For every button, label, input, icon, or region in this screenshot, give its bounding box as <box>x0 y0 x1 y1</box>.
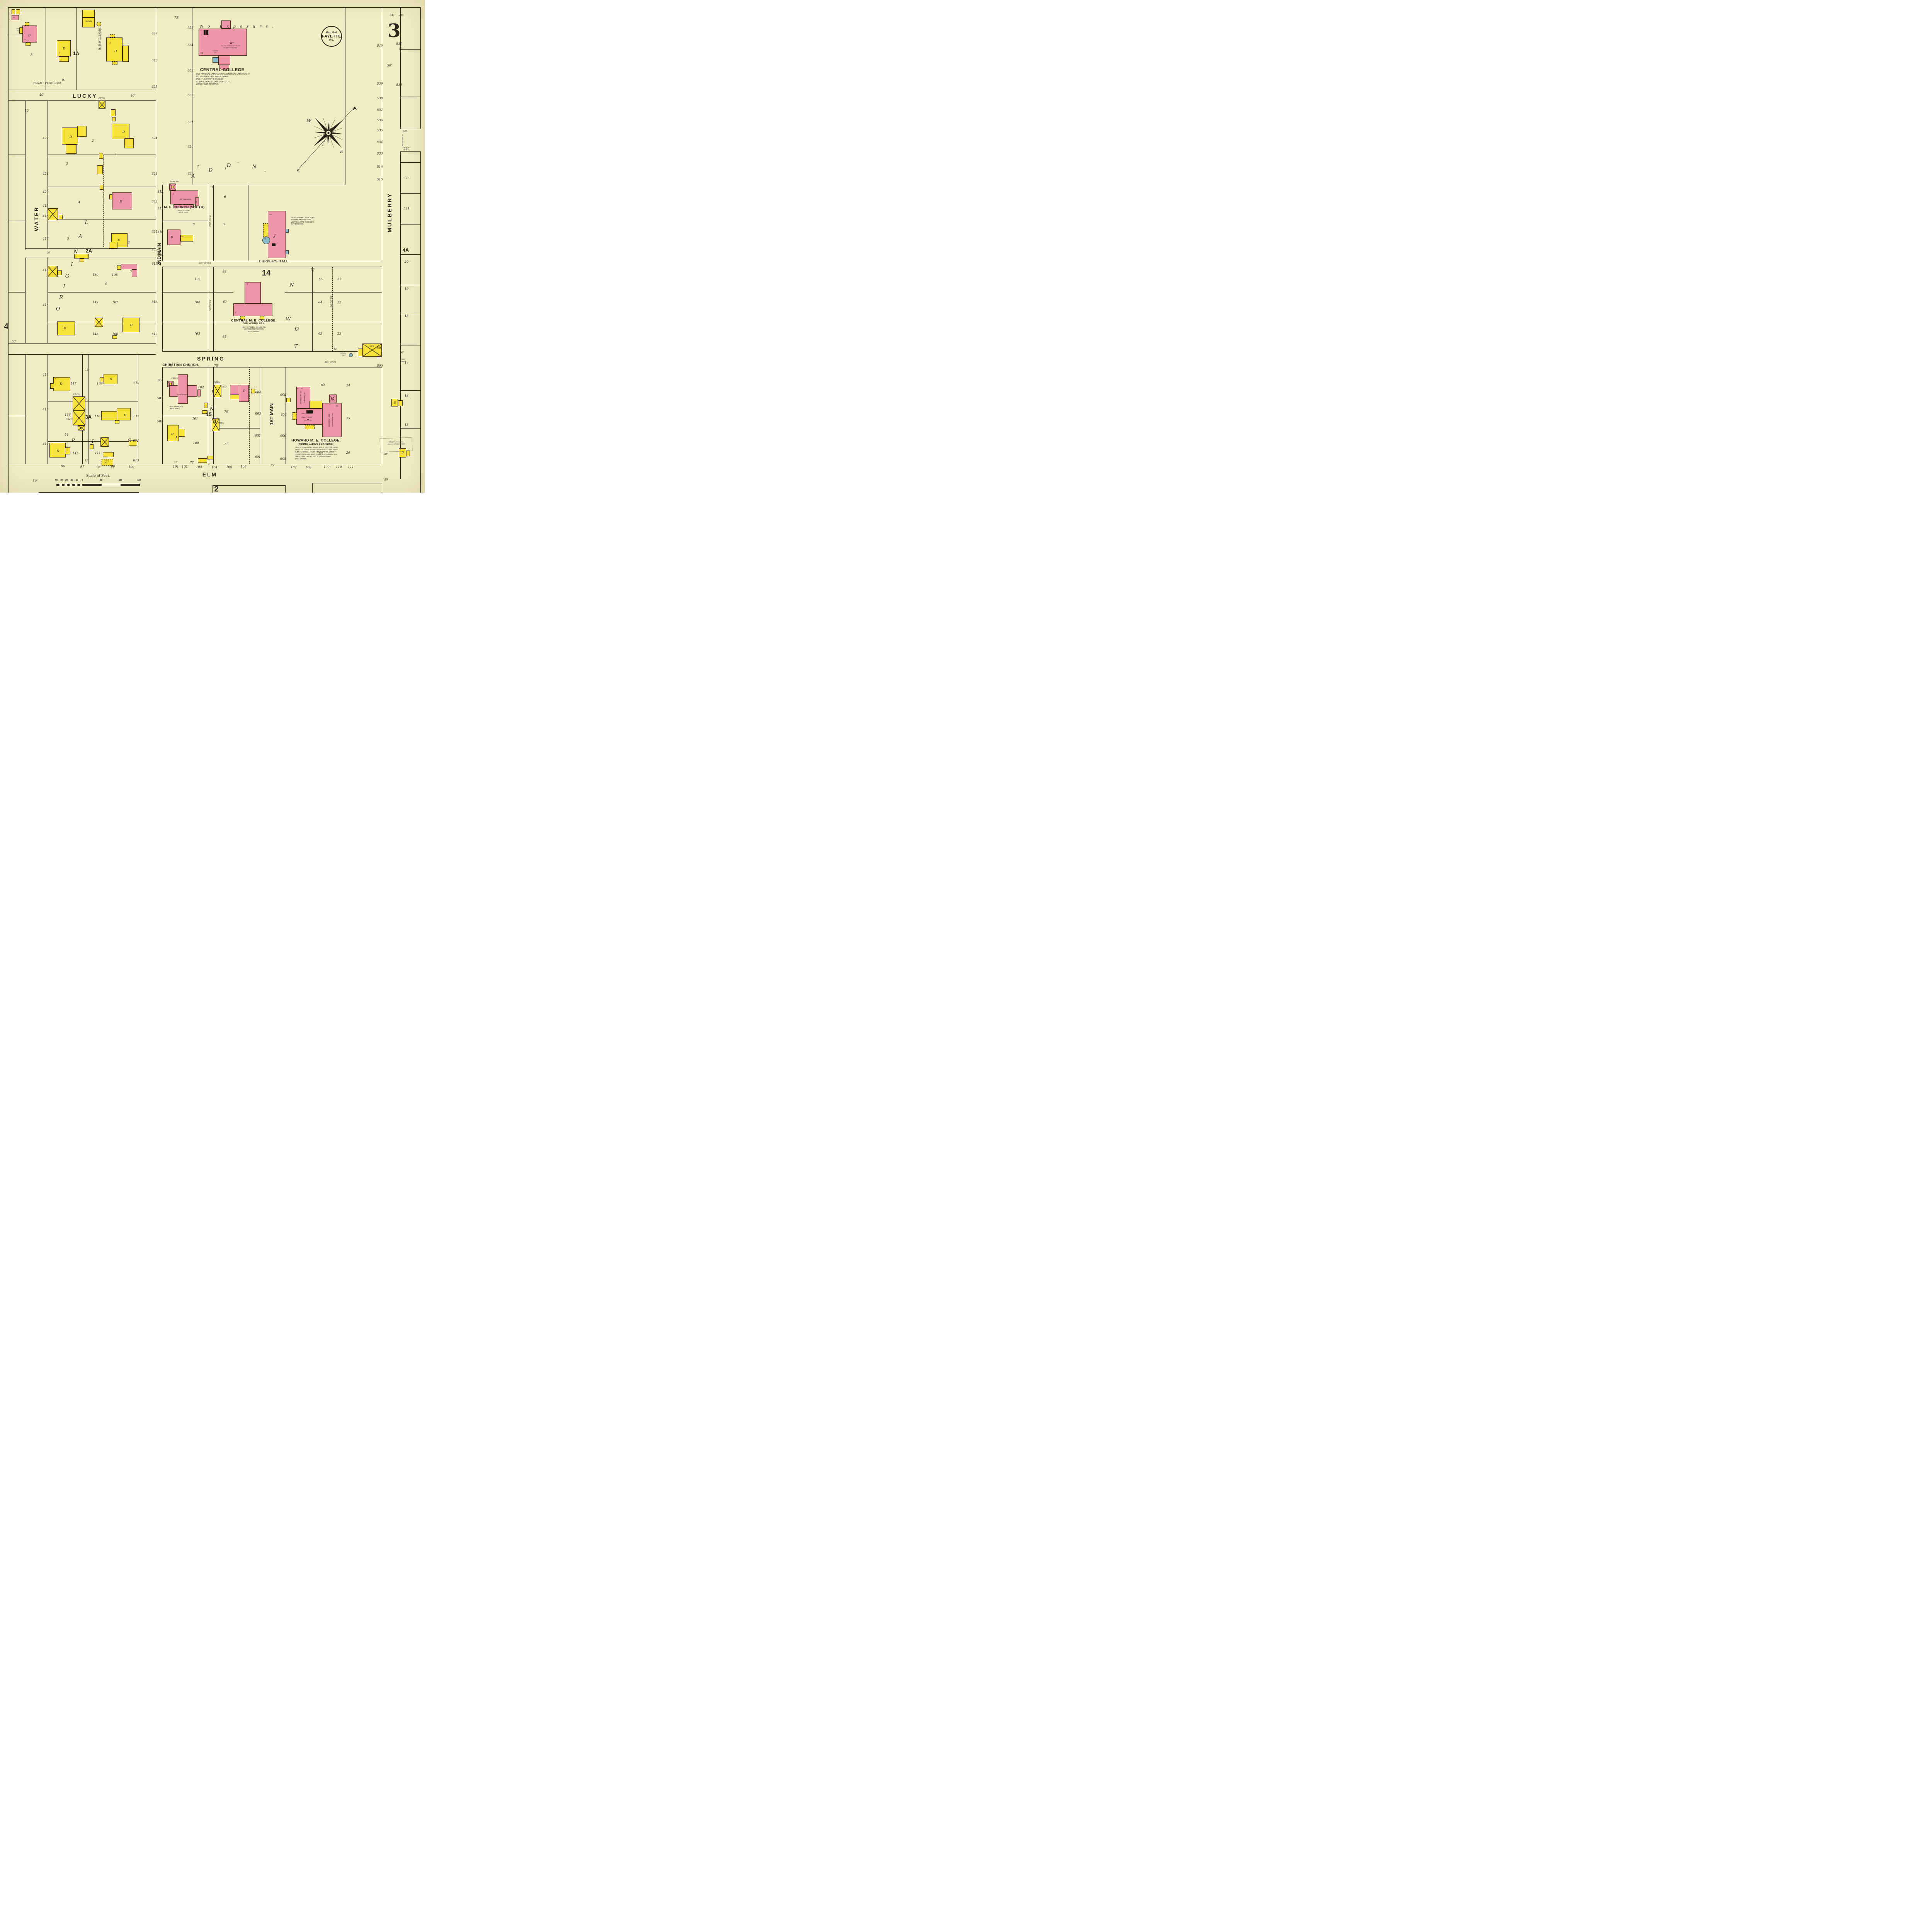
map-label: 50' <box>25 109 29 112</box>
scale-bar-left <box>56 484 83 486</box>
map-label: 422½ <box>98 98 105 100</box>
map-line <box>285 293 382 293</box>
building <box>286 250 289 254</box>
map-line <box>25 354 26 464</box>
map-label: 3B <box>297 388 299 389</box>
building <box>26 43 31 46</box>
map-label: N <box>73 250 78 255</box>
map-label: 534 <box>377 141 383 144</box>
landmark-subtitle: FOR YOUNG MEN. <box>243 323 265 325</box>
map-label: 9 <box>105 282 107 286</box>
building <box>122 46 129 62</box>
building <box>305 425 315 429</box>
building <box>213 57 218 63</box>
building <box>199 29 247 56</box>
map-label: 510 <box>157 231 163 234</box>
map-label: 66 <box>223 270 226 274</box>
library-of-congress-stamp: Map Division Library of Congress <box>379 437 412 452</box>
building <box>207 456 214 459</box>
building <box>406 451 410 456</box>
building <box>16 9 20 14</box>
map-line <box>285 485 286 493</box>
map-label: 6 <box>224 196 226 199</box>
map-line <box>400 345 420 345</box>
scale-tick-label: 150 <box>137 479 141 481</box>
building-crossed <box>48 208 58 220</box>
building-crossed <box>214 385 221 397</box>
building <box>99 153 103 159</box>
map-label: 533 <box>377 152 383 155</box>
map-label: 75' <box>174 16 179 19</box>
map-label: 422 <box>43 137 48 140</box>
scale-title: Scale of Feet. <box>86 474 110 478</box>
map-label: T <box>294 344 298 349</box>
map-label: 107 <box>112 301 118 304</box>
sanborn-map-page: 54153275'6356346336326316306296276266251… <box>0 0 425 503</box>
map-label: 7 <box>223 223 225 226</box>
map-label: 2B <box>24 39 26 41</box>
map-label: 110 <box>336 466 342 469</box>
landmark-note: LIGHT: ELEC. <box>169 408 180 410</box>
map-line <box>332 267 333 351</box>
map-label: 16 <box>405 395 408 398</box>
map-line <box>162 416 208 416</box>
map-line <box>312 483 382 483</box>
building <box>82 10 95 17</box>
map-label: 15 <box>405 423 408 427</box>
map-label: 531 <box>396 43 402 46</box>
map-label: 416 <box>43 269 48 272</box>
map-label: 525 <box>403 177 409 180</box>
map-label: 622 <box>151 200 157 203</box>
map-label: 614 <box>133 439 139 442</box>
map-line <box>400 285 420 285</box>
pipe-circle-icon <box>307 419 309 420</box>
map-label: 623 <box>151 172 157 175</box>
map-label: 603 <box>255 412 261 415</box>
map-label: 44' <box>301 388 303 389</box>
building <box>12 9 15 14</box>
map-label: 100' <box>214 53 216 54</box>
building <box>59 215 63 219</box>
compass-south-label: S <box>297 168 300 173</box>
well-icon <box>262 236 270 244</box>
building-crossed <box>78 425 85 430</box>
map-line <box>48 401 138 401</box>
building <box>50 383 54 389</box>
map-label: 601 <box>255 456 260 459</box>
map-line <box>8 354 156 355</box>
map-label: 145 <box>72 452 78 455</box>
map-label: 12' <box>174 461 178 464</box>
map-label: A <box>191 174 195 179</box>
map-label: 104 <box>211 466 217 469</box>
building-crossed <box>73 411 85 425</box>
map-label: MILL. <box>342 355 346 357</box>
map-label: V.P. <box>274 235 276 236</box>
map-label: Laundry <box>85 21 92 23</box>
map-label: 75' <box>311 268 315 271</box>
building <box>310 401 322 408</box>
map-line <box>162 267 163 351</box>
map-label: 412 <box>43 443 48 446</box>
map-label: 50' <box>33 480 37 483</box>
map-label: R <box>59 295 63 300</box>
map-line <box>39 492 139 493</box>
map-label: D <box>63 47 65 50</box>
landmark-note: 3D. HALL. HEAT: STEAM. LIGHT: ELEC. <box>196 81 231 83</box>
map-label: 635 <box>187 26 193 29</box>
map-label: 69 <box>223 386 226 389</box>
map-label: 617 <box>151 333 157 336</box>
building <box>115 420 119 423</box>
map-label: 40' <box>39 94 44 97</box>
map-label: 500 <box>377 364 383 367</box>
map-label: D <box>130 324 133 327</box>
map-label: 64 <box>318 301 322 304</box>
map-label: 101 <box>173 465 179 468</box>
map-label: 4 <box>264 238 266 240</box>
map-label: 516 <box>377 165 383 168</box>
map-label: D <box>28 34 31 37</box>
title-stamp: Mar. 1902 FAYETTE MO. <box>321 26 342 47</box>
map-label: 512 <box>157 190 163 194</box>
map-label: SPRING <box>197 356 225 361</box>
building <box>272 243 276 246</box>
map-label: 18 <box>405 315 408 318</box>
map-label: 102 <box>198 386 204 389</box>
building <box>59 56 69 62</box>
building <box>239 385 249 402</box>
building <box>25 22 29 26</box>
map-line <box>400 254 420 255</box>
map-label: 75' <box>270 464 275 467</box>
map-label: 12' <box>333 348 337 350</box>
map-label: 18' TO EAVES. <box>177 394 189 396</box>
scale-bar-right <box>82 484 140 486</box>
map-label: 2 <box>92 139 94 143</box>
map-label: 418 <box>43 215 48 218</box>
building <box>121 264 137 269</box>
map-label: 50' <box>387 64 392 67</box>
building <box>206 30 208 35</box>
map-label: Shed <box>369 346 374 348</box>
map-label: O <box>56 307 60 312</box>
map-label: 540 <box>377 44 383 48</box>
map-label: 62 <box>321 384 325 387</box>
map-label: 535 <box>377 129 383 132</box>
building <box>65 447 70 454</box>
map-label: (NOT <box>401 359 406 361</box>
map-label: 75' <box>214 364 219 367</box>
building <box>112 124 129 139</box>
map-line <box>25 100 26 250</box>
map-label: A. <box>31 54 33 56</box>
map-line <box>248 185 248 261</box>
building <box>178 374 188 404</box>
map-label: 504 <box>157 379 163 382</box>
landmark-name: CUPPLE'S HALL. <box>259 259 289 263</box>
map-label: 3A <box>85 415 92 420</box>
map-label: D <box>70 136 72 139</box>
map-label: 511 <box>157 207 163 210</box>
map-label: 68 <box>223 335 226 338</box>
map-line <box>400 428 420 429</box>
building <box>111 109 116 116</box>
map-label: 541 <box>389 14 395 17</box>
building <box>358 349 363 356</box>
building <box>101 411 117 420</box>
landmark-note: WELL WATER. <box>248 331 260 333</box>
map-label: V.P. <box>232 42 235 43</box>
map-line <box>8 7 420 8</box>
map-label: 530 <box>396 83 402 87</box>
map-label: WALL TO ROOF. <box>302 417 313 418</box>
map-label: Gymnasium 4TH <box>332 413 334 427</box>
map-label: 515 <box>377 178 383 181</box>
building-crossed <box>73 396 85 411</box>
landmark-name: CENTRAL M. E. COLLEGE. <box>231 318 276 322</box>
compass-west-label: W <box>307 118 312 123</box>
map-line <box>400 129 420 129</box>
map-line <box>400 390 420 391</box>
map-label: N <box>252 165 256 170</box>
map-label: D <box>243 390 245 393</box>
building <box>263 223 268 237</box>
building <box>268 211 286 258</box>
map-label: 101 <box>192 417 198 420</box>
building <box>197 389 201 396</box>
map-label: ELM <box>202 472 218 477</box>
map-line <box>213 267 214 351</box>
stamp-state: MO. <box>329 39 334 41</box>
map-label: 608 <box>280 393 286 396</box>
map-label: 415 <box>43 304 48 307</box>
map-label: 413½ <box>73 393 80 396</box>
landmark-name: M. E. CHURCH (SOUTH) <box>164 205 205 209</box>
building <box>66 145 77 154</box>
building <box>204 403 207 408</box>
building <box>97 165 103 174</box>
map-line <box>400 162 420 163</box>
map-label: G <box>128 438 131 443</box>
map-label: 2 <box>214 485 218 493</box>
map-label: 99½ <box>103 457 107 459</box>
map-label: A <box>78 234 82 239</box>
map-line <box>213 185 214 261</box>
building <box>198 458 207 463</box>
map-label: 12' <box>85 460 88 462</box>
map-label: R. P. WILLIAMS. <box>99 27 102 50</box>
map-label: 616 <box>133 382 139 385</box>
map-label: 109 <box>323 466 329 469</box>
map-line <box>420 151 421 493</box>
landmark-name: HOWARD M. E. COLLEGE. <box>291 439 341 443</box>
map-label: D <box>110 378 112 381</box>
map-label: 19 <box>405 287 408 291</box>
building <box>77 126 87 137</box>
map-label: 3 <box>235 312 236 314</box>
building <box>80 259 84 262</box>
map-label: 1 <box>224 168 226 171</box>
map-line <box>213 429 260 429</box>
map-label: 71 <box>224 443 228 446</box>
map-label: 105 <box>226 466 232 469</box>
map-label: (NOT OPEN) <box>210 215 212 226</box>
map-label: 150 <box>92 274 98 277</box>
scale-tick-label: 0 <box>82 479 83 481</box>
map-line <box>48 219 156 219</box>
map-label: (NOT OPEN) <box>325 362 336 364</box>
map-line <box>25 257 156 257</box>
map-label: 615 <box>133 415 139 418</box>
map-label: I <box>92 439 94 444</box>
map-label: 106 <box>112 333 118 336</box>
map-label: REYNOLDS ST. <box>402 134 404 146</box>
map-label: W <box>286 317 291 322</box>
map-label: 8 <box>192 223 194 226</box>
map-label: G <box>65 274 69 279</box>
map-label: L <box>85 220 88 225</box>
map-label: 96 <box>61 465 65 468</box>
map-label: 70 <box>224 410 228 413</box>
map-label: ISAAC PEARSON. <box>34 82 62 85</box>
landmark-note: WELL WATER. <box>295 458 307 460</box>
map-label: D <box>171 433 173 436</box>
map-label: 625 <box>151 85 157 88</box>
building <box>398 400 403 406</box>
landmark-name: CHRISTIAN CHURCH. <box>163 363 199 367</box>
map-label: D <box>124 414 126 417</box>
map-label: Recitation Rm. 1st. <box>300 390 302 404</box>
map-label: D <box>57 450 59 453</box>
map-label: 2 <box>197 165 199 168</box>
map-label: 607 <box>281 413 286 417</box>
building <box>124 138 134 148</box>
map-label: 26 <box>346 451 350 454</box>
stamp-date: Mar. 1902 <box>326 31 337 34</box>
map-label: 108 <box>305 466 311 469</box>
map-label: 536 <box>377 119 383 122</box>
landmark-note: 1ST. RECITATION ROOMS & CHAPEL. <box>196 76 230 78</box>
map-label: I <box>175 435 177 440</box>
map-label: R <box>71 438 75 443</box>
map-label: 1ST MAIN <box>269 403 274 425</box>
map-canvas: 54153275'6356346336326316306296276266251… <box>0 0 425 493</box>
landmark-note: 2ND. " " , LIBRARY & MUSEUM. <box>196 78 224 80</box>
map-label: 4 <box>4 323 8 330</box>
map-label: 106 <box>240 465 246 468</box>
map-label: 110 <box>94 415 100 418</box>
map-label: 50' <box>384 453 388 456</box>
map-label: 2 <box>110 43 111 44</box>
map-label: 50' <box>12 340 16 343</box>
building <box>286 229 289 233</box>
map-line <box>400 151 420 152</box>
map-label: 102 <box>182 465 187 468</box>
building-crossed <box>48 266 58 277</box>
map-line <box>77 7 77 90</box>
building <box>218 56 230 65</box>
map-label: 2 <box>59 53 60 54</box>
map-line <box>8 221 25 221</box>
map-label: 5 <box>67 237 69 240</box>
map-label: 1A <box>73 51 80 56</box>
map-line <box>213 485 213 493</box>
map-label: 502 <box>157 420 163 423</box>
map-label: 526 <box>403 147 409 150</box>
map-label: 23 <box>337 332 341 335</box>
map-label: 1ST. <box>17 31 20 32</box>
map-line <box>162 293 233 293</box>
map-label: V.P. <box>310 420 312 422</box>
landmark-note: ELEC. CHEMICAL HAND FIRE EXT'G'RS & ONE … <box>295 451 335 453</box>
map-label: (OLD) <box>105 460 109 462</box>
map-label: 103 <box>194 332 200 335</box>
map-label: D <box>118 239 120 242</box>
map-label: 65 <box>319 278 323 281</box>
building <box>167 230 180 245</box>
landmark-note: HAND GRENADES SCATTERED THROUGH BL'D'G. <box>295 454 337 456</box>
map-label: 50' <box>399 48 403 51</box>
landmark-note: BAS. PHYSICAL LABORATORY & CHEMICAL LABO… <box>196 73 250 75</box>
scale-tick-label: 50 <box>100 479 102 481</box>
map-label: 104 <box>194 301 200 304</box>
map-label: 50' <box>384 479 389 481</box>
building-crossed <box>100 437 109 447</box>
map-label: MULBERRY <box>387 193 392 233</box>
map-label: (NOT OPEN) <box>210 299 212 311</box>
map-label: 12' <box>208 464 211 466</box>
scale-tick-label: 30 <box>65 479 68 481</box>
building <box>90 444 94 449</box>
map-line <box>48 293 156 293</box>
map-label: D <box>122 131 125 134</box>
map-line <box>162 185 163 261</box>
map-label: 532 <box>398 14 403 17</box>
map-label: EACH FLOOR ATT'D. <box>224 48 238 49</box>
map-label: 99 <box>111 465 115 468</box>
map-line <box>382 483 382 493</box>
map-label: 618 <box>151 301 157 304</box>
map-label: 4A <box>403 248 409 253</box>
map-label: 621 <box>151 230 157 233</box>
map-label: (NOT OPEN) <box>331 296 333 307</box>
map-label: 50 <box>403 130 407 133</box>
map-label: 3½ <box>336 406 338 408</box>
map-label: 602 <box>255 434 260 437</box>
map-label: . <box>264 168 266 173</box>
building <box>179 429 185 437</box>
building <box>117 265 121 270</box>
map-label: 111 <box>348 466 354 469</box>
map-label: D <box>129 270 132 273</box>
map-label: 100 <box>128 466 134 469</box>
map-label: 50' <box>400 352 404 354</box>
map-label: 105 <box>194 278 200 281</box>
map-label: 40' <box>131 94 135 97</box>
map-label: 419 <box>43 204 48 207</box>
map-label: 108 <box>112 274 117 277</box>
map-label: 414 <box>43 373 48 376</box>
map-label: 634 <box>187 44 193 47</box>
map-label: 633 <box>187 69 193 72</box>
map-label: 100 <box>193 442 199 445</box>
map-label: 604½ <box>214 382 220 384</box>
building <box>100 185 104 190</box>
map-label: 20' <box>47 252 50 254</box>
map-line <box>162 267 382 267</box>
